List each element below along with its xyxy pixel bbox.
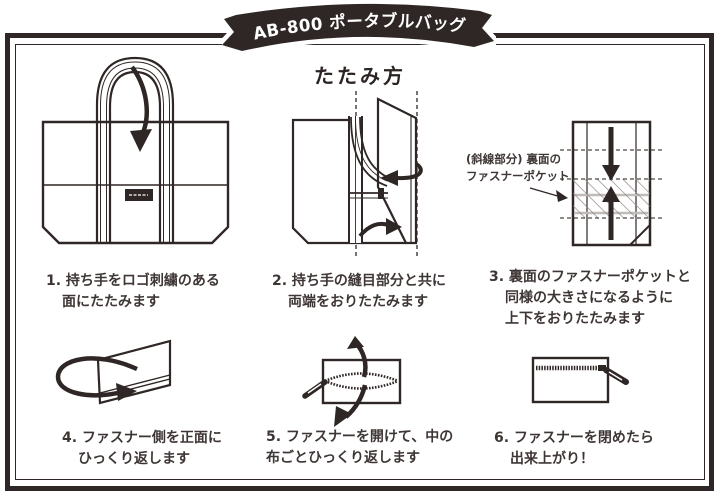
step-4-line: 4. ファスナー側を正面に [62,428,222,449]
step-4-caption: 4. ファスナー側を正面に ひっくり返します [62,428,222,470]
step-2-line: 両端をおりたたみます [272,292,446,313]
step-3-line: 3. 裏面のファスナーポケットと [489,267,691,288]
step-5-line: 5. ファスナーを開けて、中の [266,427,453,448]
finished-pouch-illustration [490,340,665,422]
page-title: たたみ方 [0,60,720,89]
pouch-body [533,358,608,402]
step-5-line: 布ごとひっくり返します [266,448,453,469]
instruction-sheet: AB-800 ポータブルバッグ たたみ方 [0,0,720,497]
step-1-caption: 1. 持ち手をロゴ刺繍のある 面にたたみます [46,271,220,313]
flip-over-illustration [40,335,240,427]
step-6-line: 6. ファスナーを閉めたら [494,428,654,449]
step-3-caption: 3. 裏面のファスナーポケットと 同様の大きさになるように 上下をおりたたみます [489,267,691,330]
step-2-line: 2. 持ち手の縫目部分と共に [272,271,446,292]
pocket-annotation-line: (斜線部分) 裏面の [466,151,570,168]
annotation-arrow [530,188,568,202]
brand-logo-label [125,189,153,201]
step-3-line: 上下をおりたたみます [489,309,691,330]
step-5-caption: 5. ファスナーを開けて、中の 布ごとひっくり返します [266,427,453,469]
step-1-line: 面にたたみます [46,292,220,313]
step-6-line: 出来上がり！ [494,449,654,470]
step-6-caption: 6. ファスナーを閉めたら 出来上がり！ [494,428,654,470]
step-2-caption: 2. 持ち手の縫目部分と共に 両端をおりたたみます [272,271,446,313]
pocket-annotation: (斜線部分) 裏面の ファスナーポケット [466,151,570,185]
handle-tab [378,188,384,199]
step-3-line: 同様の大きさになるように [489,288,691,309]
title-ribbon: AB-800 ポータブルバッグ [222,1,496,63]
turn-inside-out-illustration [285,335,445,430]
step-4-line: ひっくり返します [62,449,222,470]
step-1-line: 1. 持ち手をロゴ刺繍のある [46,271,220,292]
pocket-annotation-line: ファスナーポケット [466,168,570,185]
